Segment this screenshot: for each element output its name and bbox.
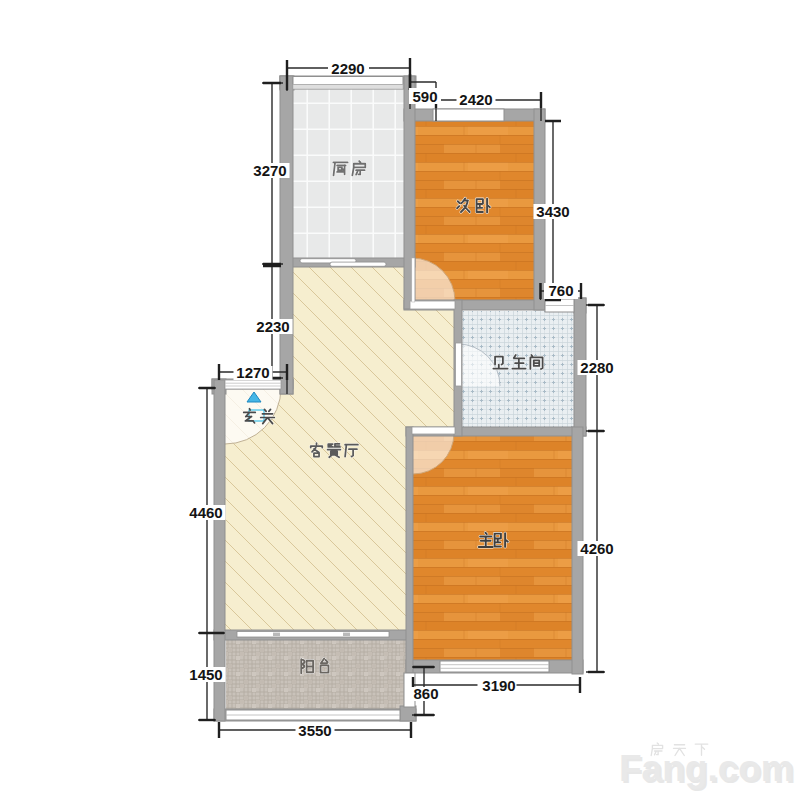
- svg-text:4460: 4460: [189, 504, 222, 521]
- svg-text:3190: 3190: [482, 677, 515, 694]
- svg-text:Fang.com: Fang.com: [619, 748, 794, 789]
- svg-text:2290: 2290: [331, 60, 364, 77]
- svg-text:2230: 2230: [256, 318, 289, 335]
- svg-text:3550: 3550: [298, 722, 331, 739]
- svg-text:2420: 2420: [459, 91, 492, 108]
- svg-text:2280: 2280: [580, 359, 613, 376]
- svg-text:860: 860: [413, 685, 438, 702]
- svg-text:590: 590: [412, 88, 437, 105]
- svg-text:760: 760: [548, 282, 573, 299]
- svg-text:3430: 3430: [536, 203, 569, 220]
- svg-text:1270: 1270: [236, 364, 269, 381]
- svg-text:3270: 3270: [253, 162, 286, 179]
- svg-text:4260: 4260: [580, 540, 613, 557]
- svg-text:1450: 1450: [189, 666, 222, 683]
